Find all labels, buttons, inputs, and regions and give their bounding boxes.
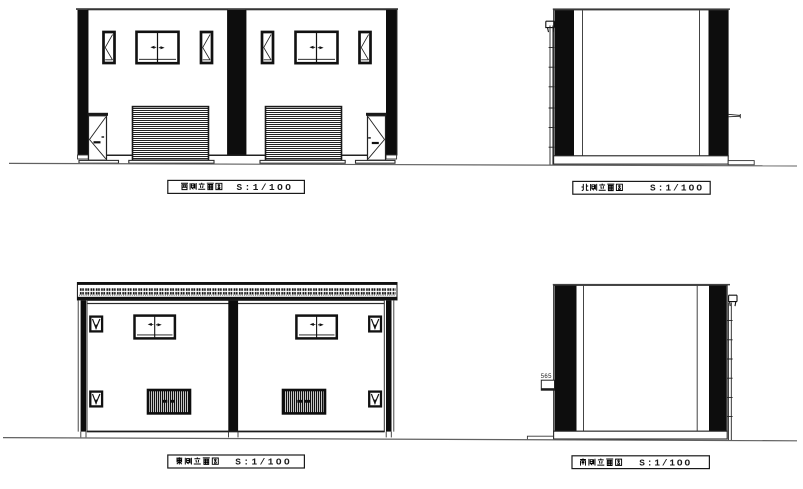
svg-text:S:1/1OO: S:1/1OO — [650, 183, 704, 194]
svg-text:S:1/1OO: S:1/1OO — [237, 182, 294, 193]
svg-text:S:1/1OO: S:1/1OO — [639, 458, 692, 469]
svg-text:565: 565 — [541, 374, 552, 380]
svg-text:S:1/1OO: S:1/1OO — [235, 457, 292, 468]
